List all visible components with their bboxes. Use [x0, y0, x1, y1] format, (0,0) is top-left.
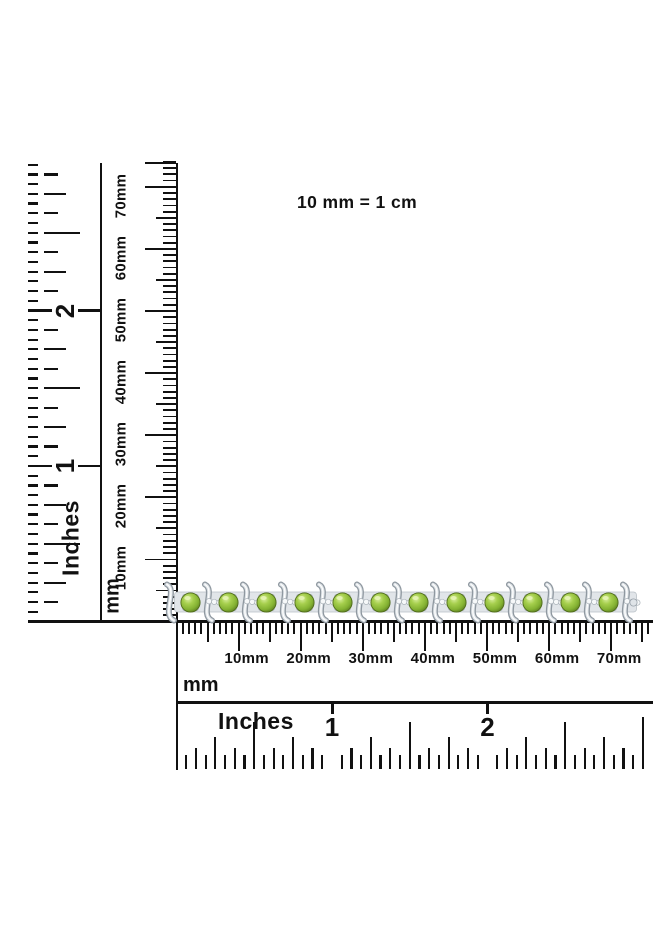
tick [409, 722, 411, 769]
tick [632, 755, 634, 769]
tick [603, 737, 605, 769]
product-measurement-image: 10 mm = 1 cm 12 10mm20mm30mm40mm50mm60mm… [0, 0, 653, 940]
tick [642, 717, 644, 769]
tick [438, 755, 440, 769]
tick [613, 755, 615, 769]
ruler-line [176, 701, 178, 769]
tick [418, 755, 420, 769]
tick [214, 737, 216, 769]
tick [195, 748, 197, 769]
tick [506, 748, 508, 769]
tick [341, 755, 343, 769]
tick [516, 755, 518, 769]
tick [467, 748, 469, 769]
tick [622, 748, 624, 769]
tick [224, 755, 226, 769]
tick [273, 748, 275, 769]
tick [477, 755, 479, 769]
tick [379, 755, 381, 769]
tick [302, 755, 304, 769]
tick [448, 737, 450, 769]
tick [554, 755, 556, 769]
tick [389, 748, 391, 769]
tick [584, 748, 586, 769]
ruler-line [177, 701, 653, 704]
tick [535, 755, 537, 769]
tick [593, 755, 595, 769]
tick [185, 755, 187, 769]
tick [574, 755, 576, 769]
tick [399, 755, 401, 769]
tick [545, 748, 547, 769]
horizontal-inches-ruler: 12 [0, 0, 653, 940]
inch-numeral: 2 [478, 714, 496, 740]
tick [243, 755, 245, 769]
tick [370, 737, 372, 769]
tick [525, 737, 527, 769]
tick [292, 737, 294, 769]
tick [321, 755, 323, 769]
tick [282, 755, 284, 769]
tick [360, 755, 362, 769]
tick [234, 748, 236, 769]
tick [205, 755, 207, 769]
vertical-mm-unit-label: mm [102, 578, 125, 614]
tick [311, 748, 313, 769]
tick [350, 748, 352, 769]
tick [496, 755, 498, 769]
tick [428, 748, 430, 769]
green-gemstone-tennis-bracelet [160, 575, 653, 630]
horizontal-inches-unit-label: Inches [218, 708, 294, 735]
tick [564, 722, 566, 769]
horizontal-mm-unit-label: mm [183, 674, 219, 697]
vertical-inches-unit-label: Inches [58, 500, 85, 576]
tick [263, 755, 265, 769]
tick [457, 755, 459, 769]
inch-numeral: 1 [323, 714, 341, 740]
